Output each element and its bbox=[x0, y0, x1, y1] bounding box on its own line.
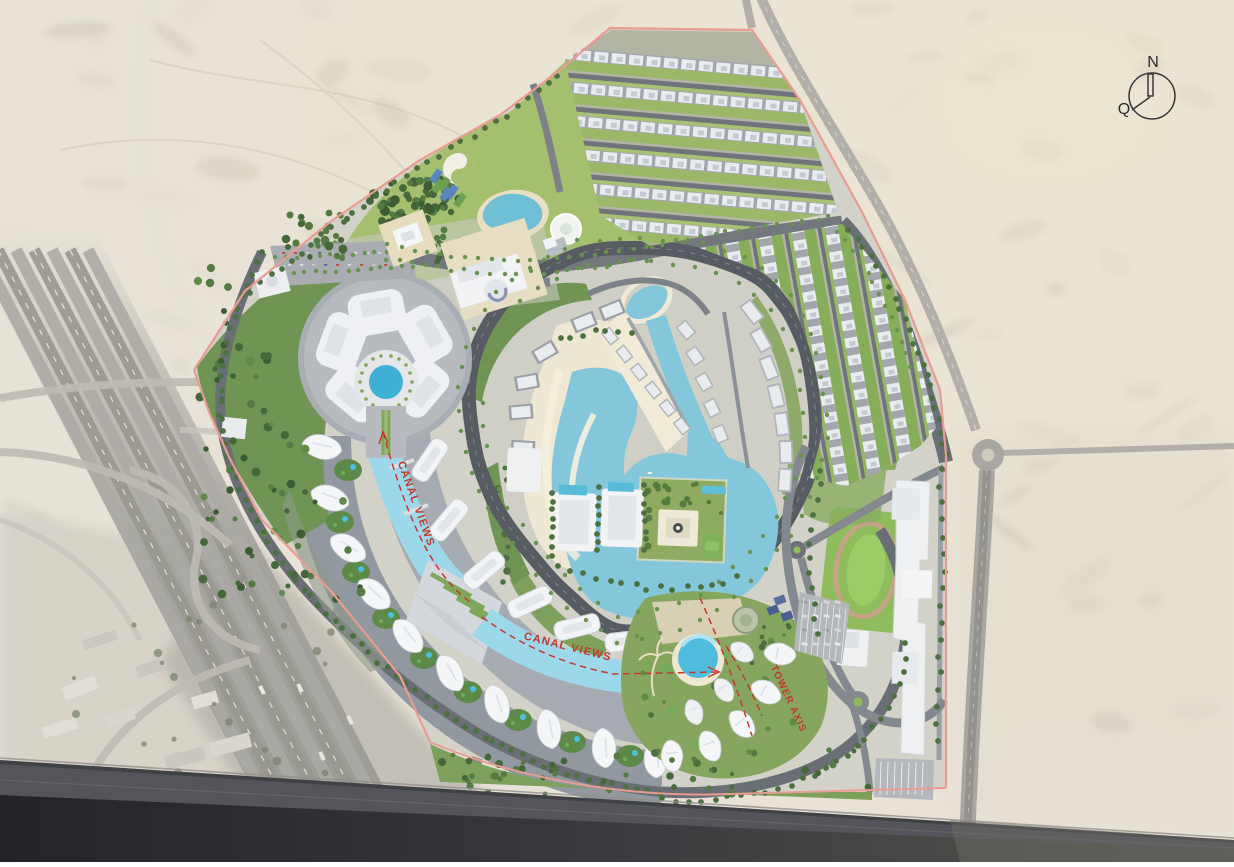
svg-text:Q: Q bbox=[1118, 101, 1130, 118]
svg-text:N: N bbox=[1147, 54, 1159, 71]
